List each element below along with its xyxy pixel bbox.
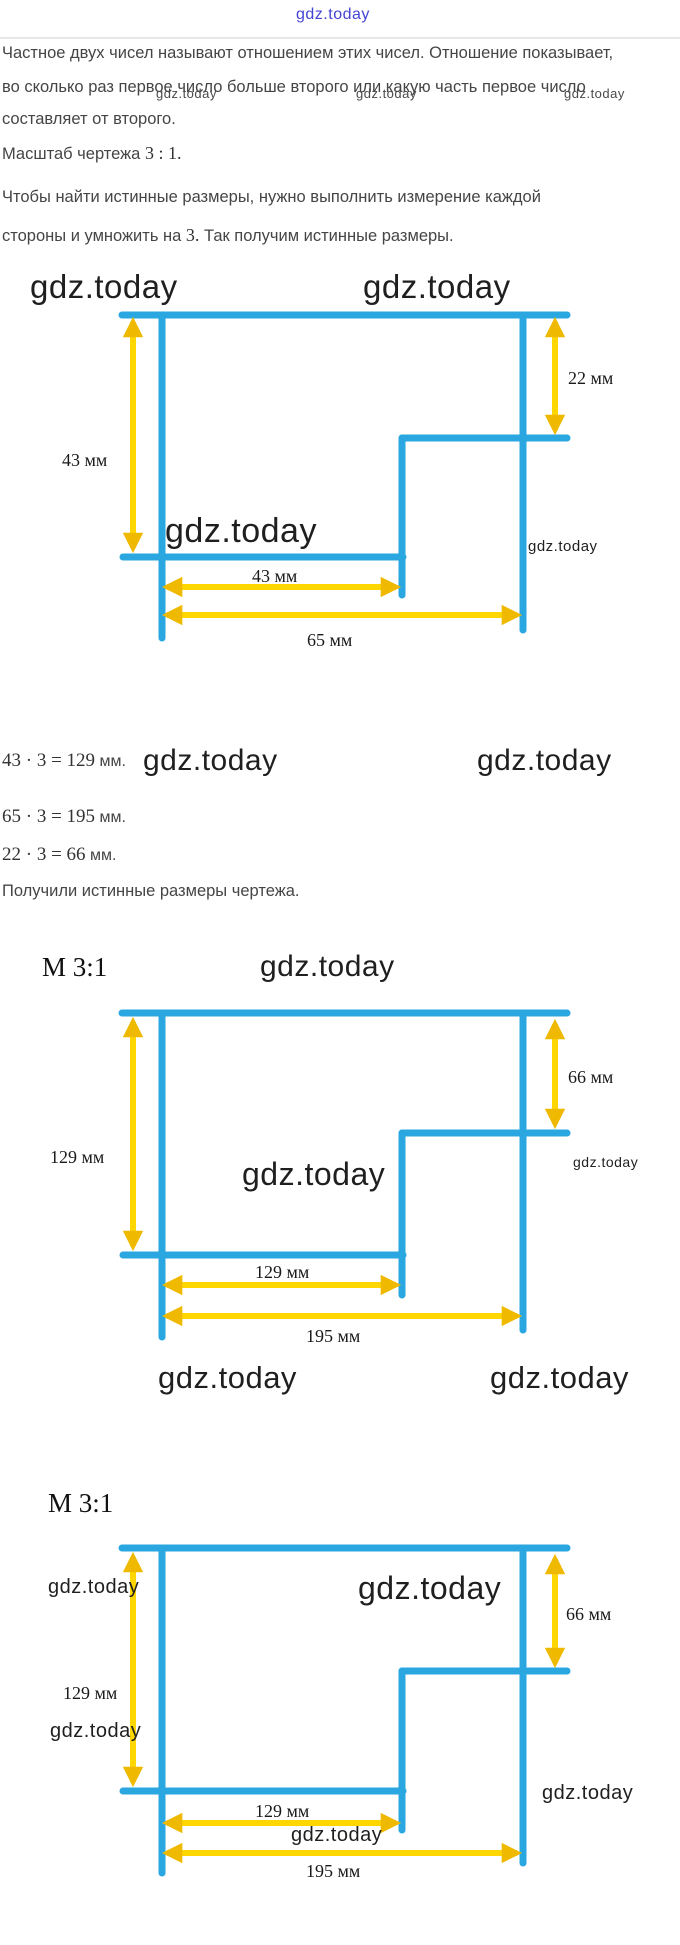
calc-1-unit: мм. bbox=[95, 753, 126, 770]
dim-label-inner-1: 43 мм bbox=[252, 566, 297, 587]
calc-1-math: 43 · 3 = 129 bbox=[2, 750, 95, 771]
dim-label-step-1: 22 мм bbox=[568, 368, 613, 389]
calc-2-unit: мм. bbox=[95, 809, 126, 826]
calc-watermark-left: gdz.today bbox=[143, 744, 278, 778]
conclusion-line: Получили истинные размеры чертежа. bbox=[2, 882, 300, 901]
dim-label-height-2: 129 мм bbox=[50, 1147, 104, 1168]
diagram2-watermark-bottom-left: gdz.today bbox=[158, 1360, 297, 1396]
diagram2-watermark-top: gdz.today bbox=[260, 950, 395, 984]
diagram3-watermark-center: gdz.today bbox=[358, 1570, 501, 1607]
diagram2-watermark-bottom-right: gdz.today bbox=[490, 1360, 629, 1396]
dim-label-width-1: 65 мм bbox=[307, 630, 352, 651]
dim-label-width-2: 195 мм bbox=[306, 1326, 360, 1347]
dim-label-height-1: 43 мм bbox=[62, 450, 107, 471]
diagram2-watermark-small: gdz.today bbox=[573, 1154, 638, 1170]
diagram3-watermark-bottom-center: gdz.today bbox=[291, 1824, 382, 1847]
dim-label-height-3: 129 мм bbox=[63, 1683, 117, 1704]
dim-label-inner-2: 129 мм bbox=[255, 1262, 309, 1283]
calc-3-unit: мм. bbox=[86, 847, 117, 864]
calc-3-math: 22 · 3 = 66 bbox=[2, 844, 86, 865]
calc-line-2: 65 · 3 = 195 мм. bbox=[2, 806, 126, 828]
scale-label-1: М 3:1 bbox=[42, 952, 107, 983]
diagram-original-lines bbox=[122, 315, 567, 638]
diagram3-watermark-right: gdz.today bbox=[542, 1782, 633, 1805]
diagram1-watermark-small: gdz.today bbox=[528, 538, 598, 555]
scale-label-2: М 3:1 bbox=[48, 1488, 113, 1519]
diagram3-watermark-left-bottom: gdz.today bbox=[50, 1720, 141, 1743]
dim-label-width-3: 195 мм bbox=[306, 1861, 360, 1882]
calc-2-math: 65 · 3 = 195 bbox=[2, 806, 95, 827]
diagram1-watermark-left: gdz.today bbox=[30, 268, 178, 306]
calc-line-1: 43 · 3 = 129 мм. bbox=[2, 750, 126, 772]
dim-label-step-2: 66 мм bbox=[568, 1067, 613, 1088]
diagram1-watermark-right: gdz.today bbox=[363, 268, 511, 306]
solution-page: gdz.today Частное двух чисел называют от… bbox=[0, 0, 680, 1945]
calc-watermark-right: gdz.today bbox=[477, 744, 612, 778]
diagram3-watermark-left-top: gdz.today bbox=[48, 1576, 139, 1599]
calc-line-3: 22 · 3 = 66 мм. bbox=[2, 844, 116, 866]
dim-label-inner-3: 129 мм bbox=[255, 1801, 309, 1822]
diagram1-watermark-middle: gdz.today bbox=[165, 512, 317, 551]
diagram2-watermark-middle: gdz.today bbox=[242, 1156, 385, 1193]
dim-label-step-3: 66 мм bbox=[566, 1604, 611, 1625]
